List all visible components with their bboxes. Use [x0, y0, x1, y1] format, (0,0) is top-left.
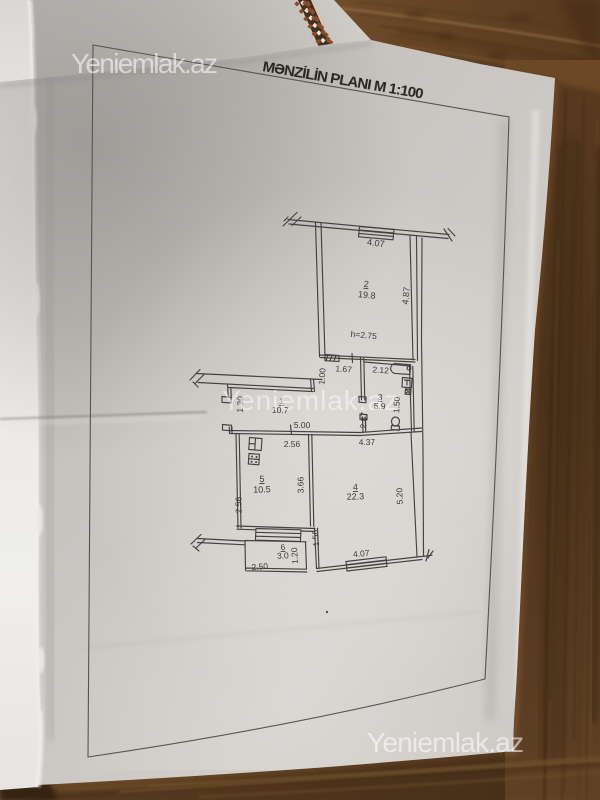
svg-text:1.67: 1.67 — [335, 363, 352, 374]
svg-text:4.07: 4.07 — [367, 237, 386, 249]
svg-text:5.00: 5.00 — [294, 420, 311, 430]
svg-text:4.37: 4.37 — [359, 437, 376, 447]
svg-text:3.0: 3.0 — [277, 550, 290, 561]
svg-text:5: 5 — [259, 474, 264, 484]
svg-text:4.07: 4.07 — [353, 548, 371, 559]
svg-text:2.50: 2.50 — [251, 561, 268, 572]
svg-text:1.20: 1.20 — [289, 547, 300, 564]
svg-text:2.12: 2.12 — [372, 364, 389, 375]
svg-text:22.3: 22.3 — [346, 491, 364, 502]
svg-text:2.56: 2.56 — [233, 496, 243, 513]
svg-text:2: 2 — [363, 279, 369, 289]
svg-text:5.20: 5.20 — [394, 487, 405, 504]
svg-text:Yeniemlak.az: Yeniemlak.az — [71, 48, 218, 79]
svg-text:1.00: 1.00 — [316, 367, 327, 384]
svg-text:1.56: 1.56 — [310, 529, 321, 546]
svg-text:Yeniemlak.az: Yeniemlak.az — [222, 385, 398, 416]
svg-text:4.87: 4.87 — [400, 286, 412, 304]
svg-text:3.66: 3.66 — [295, 476, 305, 493]
svg-text:10.5: 10.5 — [253, 484, 271, 494]
svg-text:2.56: 2.56 — [284, 439, 301, 449]
svg-text:19.8: 19.8 — [358, 289, 376, 301]
svg-text:Yeniemlak.az: Yeniemlak.az — [367, 727, 524, 758]
